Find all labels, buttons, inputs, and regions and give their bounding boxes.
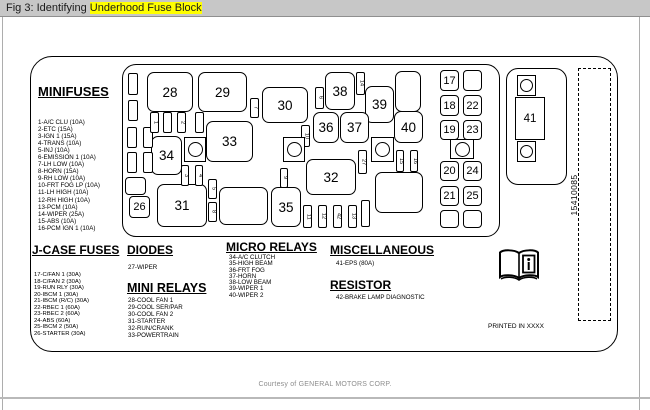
list-line: 9-RH LOW (10A) — [38, 175, 100, 182]
mount-post-icon — [283, 137, 305, 162]
relay-fuse-cell-29: 29 — [198, 72, 247, 112]
miscellaneous-heading: MISCELLANEOUS — [330, 243, 434, 257]
mount-post-icon — [450, 139, 474, 159]
list-line: 5-INJ (10A) — [38, 147, 100, 154]
minifuse-slot-11: 11 — [303, 205, 312, 228]
list-line: 13-PCM (10A) — [38, 204, 100, 211]
page-left-border — [2, 17, 3, 410]
minifuse-slot-5: 5 — [208, 179, 217, 199]
minifuse-slot-42: 42 — [333, 205, 342, 228]
empty-fuse-slot — [127, 127, 137, 148]
part-number: 15410085 — [569, 165, 579, 225]
list-line: 27-WIPER — [128, 265, 157, 272]
relay-fuse-cell-37: 37 — [340, 112, 369, 143]
minifuse-slot-13: 13 — [348, 205, 357, 228]
relay-fuse-cell-40: 40 — [394, 111, 423, 143]
eps-fuse-section: 41 — [506, 68, 567, 185]
bolt-circle-icon — [520, 145, 533, 158]
minifuse-slot-8: 8 — [208, 202, 217, 222]
minifuse-slot-16: 16 — [410, 150, 418, 172]
mount-post-icon — [184, 137, 206, 162]
miscellaneous-list: 41-EPS (80A) — [336, 261, 374, 268]
resistor-heading: RESISTOR — [330, 278, 391, 292]
empty-cell — [395, 71, 421, 112]
list-line: 4-TRANS (10A) — [38, 140, 100, 147]
minifuse-slot-9: 9 — [280, 168, 288, 188]
label-sticker-area — [578, 68, 611, 321]
caption-highlight-text: Underhood Fuse Block — [90, 2, 202, 14]
relay-fuse-cell-24: 24 — [463, 161, 482, 181]
eps-fuse-41: 41 — [515, 97, 545, 140]
list-line: 8-HORN (15A) — [38, 168, 100, 175]
owners-manual-book-icon — [496, 248, 542, 291]
mini-relays-heading: MINI RELAYS — [127, 281, 206, 295]
minifuse-slot-15: 15 — [396, 150, 404, 172]
minifuse-slot-4: 4 — [195, 165, 203, 186]
mount-post-icon — [371, 137, 394, 162]
relay-fuse-cell-20: 20 — [440, 161, 459, 181]
empty-fuse-slot — [143, 152, 153, 173]
list-line: 15-ABS (10A) — [38, 218, 100, 225]
relay-fuse-cell-22: 22 — [463, 95, 482, 116]
micro-relays-list: 34-A/C CLUTCH35-HIGH BEAM36-FRT FOG37-HO… — [229, 255, 275, 299]
figure-viewer: Fig 3: Identifying Underhood Fuse Block … — [0, 0, 650, 410]
relay-fuse-cell-30: 30 — [262, 87, 308, 123]
bolt-circle-icon — [520, 79, 533, 92]
empty-cell — [463, 210, 482, 228]
relay-fuse-cell-36: 36 — [313, 112, 339, 143]
minifuses-heading: MINIFUSES — [38, 84, 109, 99]
list-line: 11-LH HIGH (10A) — [38, 189, 100, 196]
list-line: 7-LH LOW (10A) — [38, 161, 100, 168]
list-line: 40-WIPER 2 — [229, 293, 275, 299]
bolt-terminal-icon — [517, 141, 536, 162]
minifuse-slot-6: 6 — [315, 87, 324, 109]
diodes-heading: DIODES — [127, 243, 173, 257]
list-line: 3-IGN 1 (15A) — [38, 133, 100, 140]
caption-text: Fig 3: Identifying — [6, 2, 90, 14]
empty-fuse-slot — [361, 200, 370, 227]
minifuses-list: 1-A/C CLU (10A)2-ETC (15A)3-IGN 1 (15A)4… — [38, 119, 100, 232]
resistor-list: 42-BRAKE LAMP DIAGNOSTIC — [336, 295, 425, 302]
minifuse-slot-7: 7 — [250, 98, 259, 118]
relay-fuse-cell-35: 35 — [271, 187, 301, 227]
relay-fuse-cell-18: 18 — [440, 95, 459, 116]
minifuse-slot-1: 1 — [150, 112, 159, 133]
empty-fuse-slot — [127, 152, 137, 173]
printed-note: PRINTED IN XXXX — [488, 323, 544, 330]
empty-fuse-slot — [163, 112, 172, 133]
relay-fuse-cell-21: 21 — [440, 186, 459, 206]
micro-relays-heading: MICRO RELAYS — [226, 240, 317, 254]
minifuse-slot-27: 27 — [358, 150, 367, 174]
minifuse-slot-14: 14 — [356, 72, 365, 95]
relay-fuse-cell-28: 28 — [147, 72, 193, 112]
list-line: 26-STARTER (30A) — [34, 331, 89, 338]
empty-cell — [219, 187, 268, 225]
minifuse-slot-2: 2 — [177, 112, 186, 133]
relay-fuse-cell-39: 39 — [365, 86, 394, 123]
jcase-fuses-list: 17-C/FAN 1 (30A)18-C/FAN 2 (30A)19-RUN R… — [34, 272, 89, 337]
list-line: 12-RH HIGH (10A) — [38, 197, 100, 204]
empty-fuse-slot — [195, 112, 204, 133]
relay-fuse-cell-33: 33 — [206, 121, 253, 162]
list-line: 17-C/FAN 1 (30A) — [34, 272, 89, 279]
list-line: 1-A/C CLU (10A) — [38, 119, 100, 126]
courtesy-note: Courtesy of GENERAL MOTORS CORP. — [0, 381, 650, 388]
relay-fuse-cell-23: 23 — [463, 120, 482, 140]
minifuse-slot-3: 3 — [181, 165, 189, 186]
relay-fuse-cell-17: 17 — [440, 70, 459, 91]
list-line: 14-WIPER (25A) — [38, 211, 100, 218]
empty-cell — [375, 172, 423, 213]
relay-fuse-cell-38: 38 — [325, 72, 355, 110]
list-line: 10-FRT FOG LP (10A) — [38, 182, 100, 189]
bottom-rule — [0, 397, 650, 399]
figure-caption-bar: Fig 3: Identifying Underhood Fuse Block — [0, 0, 650, 17]
relay-fuse-cell-19: 19 — [440, 120, 459, 140]
empty-fuse-slot — [128, 73, 138, 95]
bolt-terminal-icon — [517, 75, 536, 96]
empty-cell — [463, 70, 482, 91]
list-line: 6-EMISSION 1 (10A) — [38, 154, 100, 161]
diodes-list: 27-WIPER — [128, 265, 157, 272]
empty-fuse-slot — [128, 100, 138, 121]
list-line: 42-BRAKE LAMP DIAGNOSTIC — [336, 295, 425, 302]
relay-fuse-cell-31: 31 — [157, 184, 207, 227]
empty-cell — [125, 177, 146, 195]
relay-fuse-cell-34: 34 — [151, 136, 182, 175]
page-right-border — [639, 17, 640, 410]
list-line: 16-PCM IGN 1 (10A) — [38, 225, 100, 232]
relay-fuse-cell-25: 25 — [463, 186, 482, 206]
list-line: 2-ETC (15A) — [38, 126, 100, 133]
relay-fuse-cell-32: 32 — [306, 159, 356, 195]
list-line: 41-EPS (80A) — [336, 261, 374, 268]
mini-relays-list: 28-COOL FAN 129-COOL SER/PAR30-COOL FAN … — [128, 298, 183, 339]
relay-fuse-cell-26: 26 — [129, 196, 150, 218]
list-line: 33-POWERTRAIN — [128, 333, 183, 340]
minifuse-slot-12: 12 — [318, 205, 327, 228]
jcase-fuses-heading: J-CASE FUSES — [32, 243, 119, 257]
list-line: 21-IBCM (R/C) (30A) — [34, 298, 89, 305]
empty-cell — [440, 210, 459, 228]
list-line: 19-RUN RLY (30A) — [34, 285, 89, 292]
